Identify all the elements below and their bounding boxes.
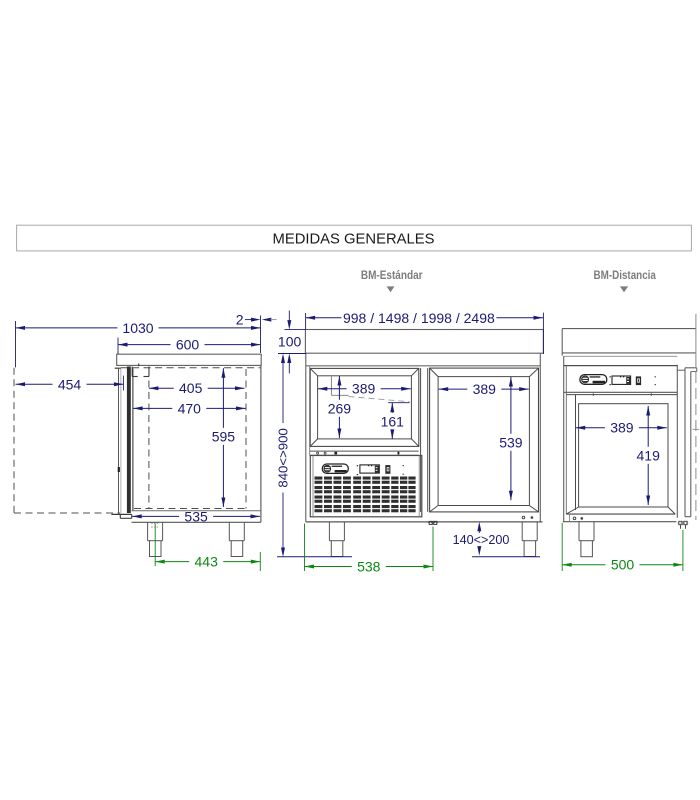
svg-text:538: 538 (357, 559, 381, 575)
svg-text:1030: 1030 (122, 320, 153, 336)
svg-text:595: 595 (212, 428, 236, 444)
svg-text:500: 500 (611, 557, 635, 573)
svg-text:389: 389 (352, 381, 376, 397)
svg-text:405: 405 (179, 380, 203, 396)
svg-text:443: 443 (195, 554, 219, 570)
svg-text:389: 389 (473, 381, 497, 397)
svg-text:539: 539 (499, 434, 523, 450)
svg-text:2: 2 (236, 311, 244, 327)
svg-text:BM-Distancia: BM-Distancia (594, 269, 657, 282)
svg-text:389: 389 (610, 420, 634, 436)
svg-text:600: 600 (176, 337, 200, 353)
svg-text:998 / 1498 / 1998 / 2498: 998 / 1498 / 1998 / 2498 (343, 310, 495, 326)
svg-text:BM-Estándar: BM-Estándar (361, 269, 423, 282)
svg-text:840<>900: 840<>900 (276, 428, 291, 487)
svg-text:454: 454 (58, 376, 82, 392)
svg-text:419: 419 (637, 447, 661, 463)
svg-text:535: 535 (184, 508, 208, 524)
svg-text:470: 470 (178, 400, 202, 416)
svg-text:269: 269 (328, 400, 352, 416)
svg-text:140<>200: 140<>200 (453, 533, 510, 547)
svg-text:161: 161 (381, 413, 405, 429)
svg-text:MEDIDAS GENERALES: MEDIDAS GENERALES (273, 231, 435, 248)
svg-text:100: 100 (278, 333, 302, 349)
